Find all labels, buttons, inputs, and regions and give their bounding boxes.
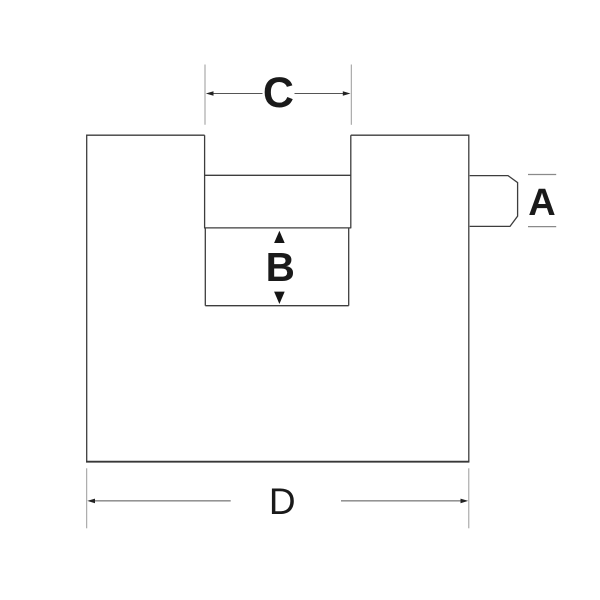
svg-text:B: B — [266, 244, 295, 290]
svg-text:C: C — [263, 69, 294, 117]
svg-text:A: A — [528, 182, 555, 224]
svg-text:D: D — [269, 481, 296, 522]
